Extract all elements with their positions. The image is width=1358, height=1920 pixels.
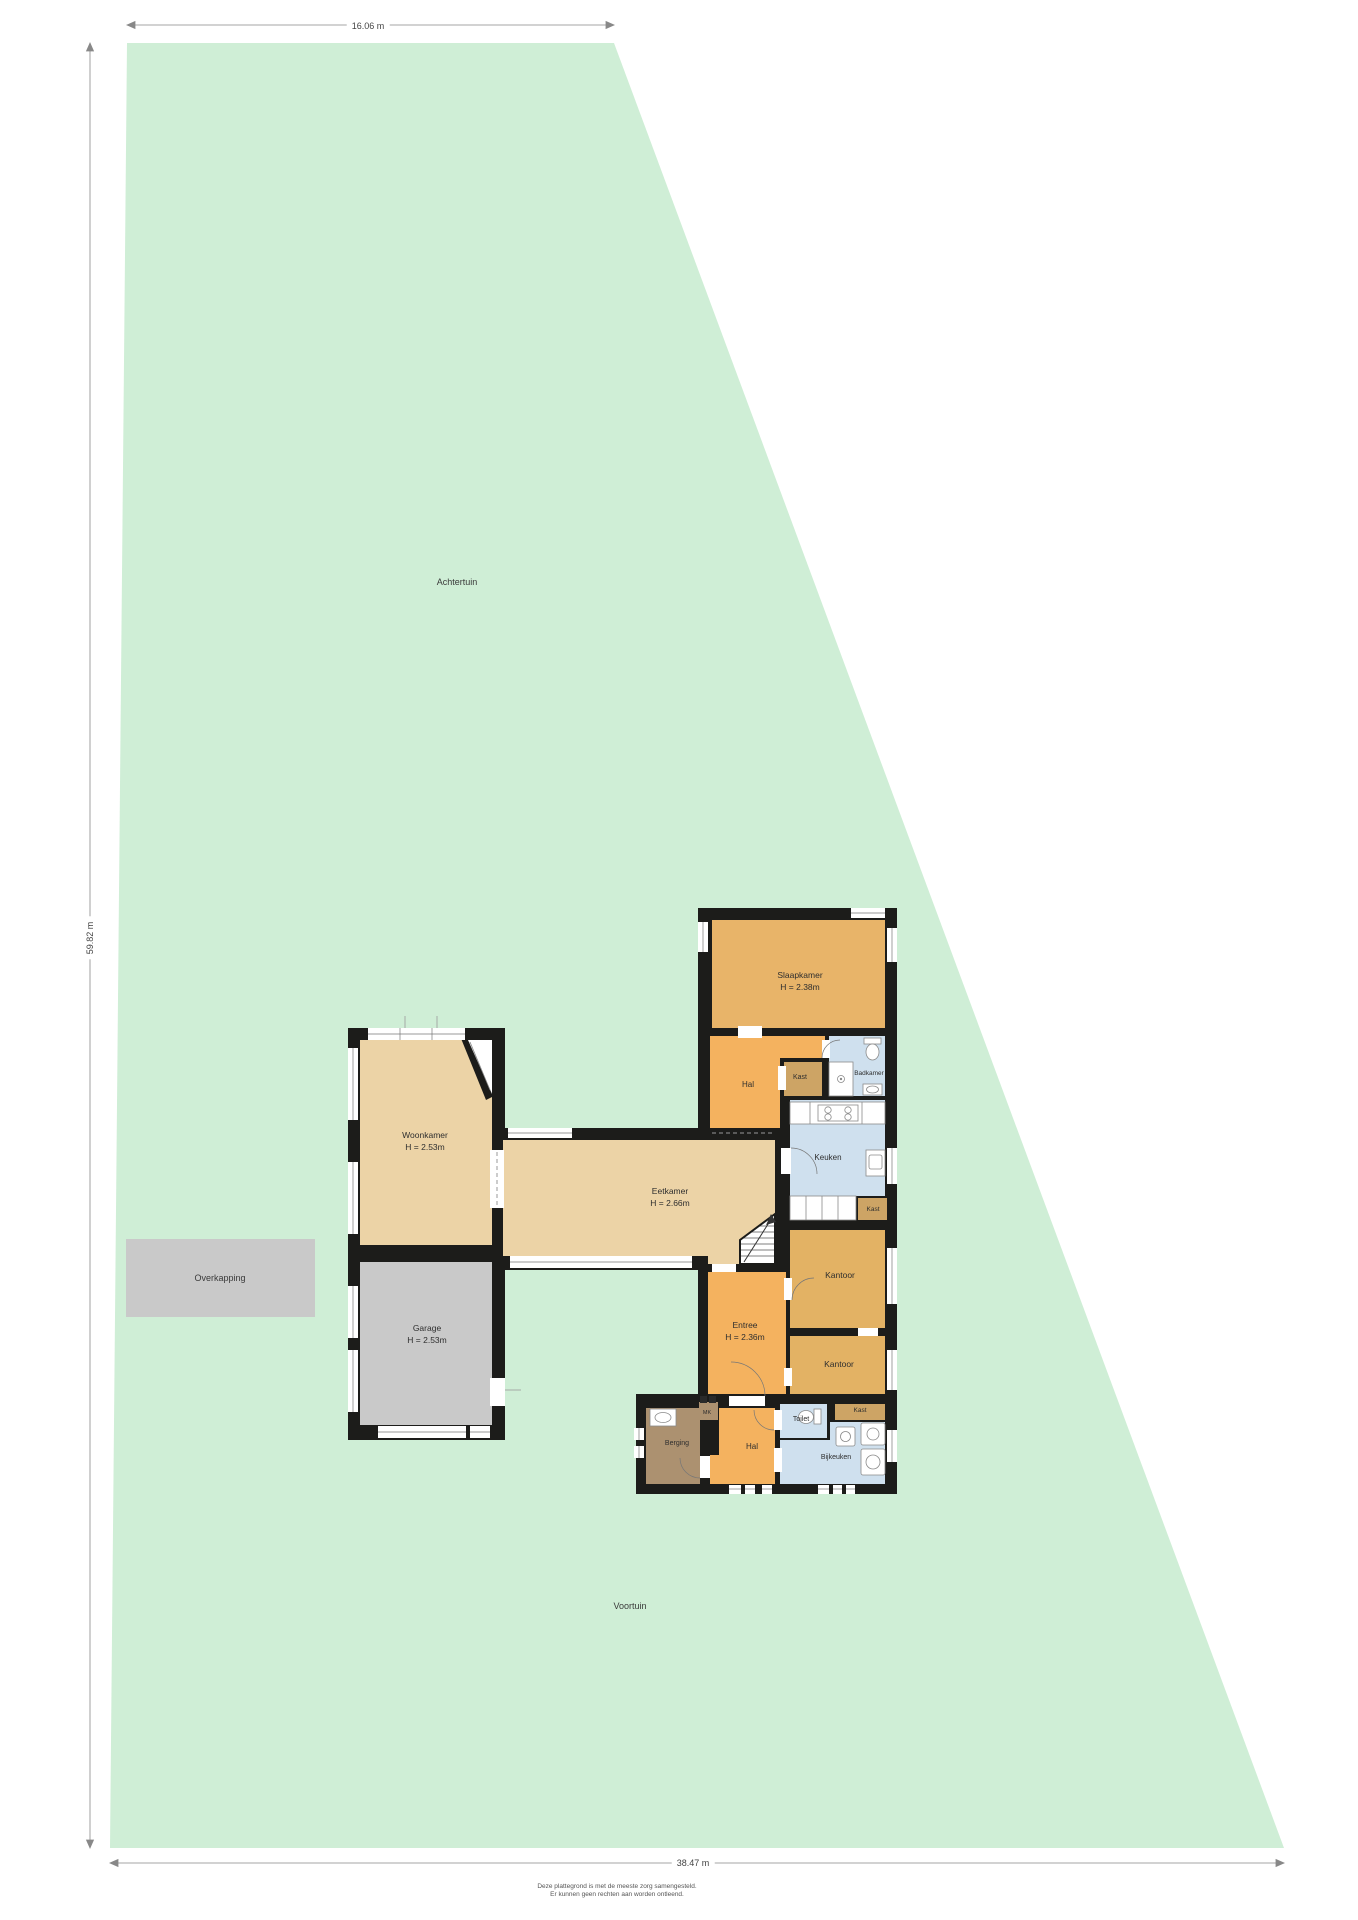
room-height-garage: H = 2.53m [407,1334,446,1346]
room-label-hal-boven: Hal [742,1079,754,1091]
plot-polygon [110,43,1284,1848]
room-label-slaapkamer: Slaapkamer [777,969,822,981]
room-label-group-eetkamer: Eetkamer H = 2.66m [650,1185,689,1209]
room-label-badkamer: Badkamer [854,1068,884,1080]
room-label-berging: Berging [665,1438,689,1450]
room-label-hal-beneden: Hal [746,1441,758,1453]
label-voortuin: Voortuin [613,1601,646,1611]
berging-sink-icon [650,1409,676,1426]
room-height-eetkamer: H = 2.66m [650,1197,689,1209]
dim-bottom-label: 38.47 m [672,1858,715,1868]
room-height-slaapkamer: H = 2.38m [777,981,822,993]
appliance-icon [836,1427,855,1446]
dim-left-label: 59.82 m [85,917,95,960]
toilet-icon [864,1038,881,1044]
label-overkapping: Overkapping [194,1273,245,1283]
room-hal-beneden [710,1408,775,1484]
kitchen-cupboards [790,1196,856,1220]
disclaimer-line-2: Er kunnen geen rechten aan worden ontlee… [550,1891,684,1899]
room-label-kast-keuken: Kast [866,1204,879,1216]
room-label-entree: Entree [725,1319,764,1331]
room-label-garage: Garage [407,1322,446,1334]
room-label-toilet: Toilet [793,1414,809,1426]
room-label-group-garage: Garage H = 2.53m [407,1322,446,1346]
room-label-group-entree: Entree H = 2.36m [725,1319,764,1343]
room-label-woonkamer: Woonkamer [402,1129,448,1141]
room-label-meterkast: MK [703,1410,711,1416]
room-label-keuken: Keuken [814,1152,841,1164]
room-label-kantoor-2: Kantoor [824,1358,854,1370]
dim-top-label: 16.06 m [347,21,390,31]
label-achtertuin: Achtertuin [437,577,478,587]
room-label-kast-bijkeuken: Kast [853,1405,866,1417]
room-label-kantoor-1: Kantoor [825,1269,855,1281]
room-label-kast-hal: Kast [793,1072,807,1084]
floorplan-page: 16.06 m 59.82 m 38.47 m Achtertuin Voort… [0,0,1358,1920]
room-eetkamer [503,1140,775,1268]
room-label-group-woonkamer: Woonkamer H = 2.53m [402,1129,448,1153]
room-label-eetkamer: Eetkamer [650,1185,689,1197]
room-label-bijkeuken: Bijkeuken [821,1452,851,1464]
room-height-woonkamer: H = 2.53m [402,1141,448,1153]
room-label-group-slaapkamer: Slaapkamer H = 2.38m [777,969,822,993]
washer-icon [861,1423,885,1445]
room-height-entree: H = 2.36m [725,1331,764,1343]
disclaimer-line-1: Deze plattegrond is met de meeste zorg s… [537,1883,696,1891]
dryer-icon [861,1449,885,1475]
floor-plan-canvas [0,0,1358,1920]
